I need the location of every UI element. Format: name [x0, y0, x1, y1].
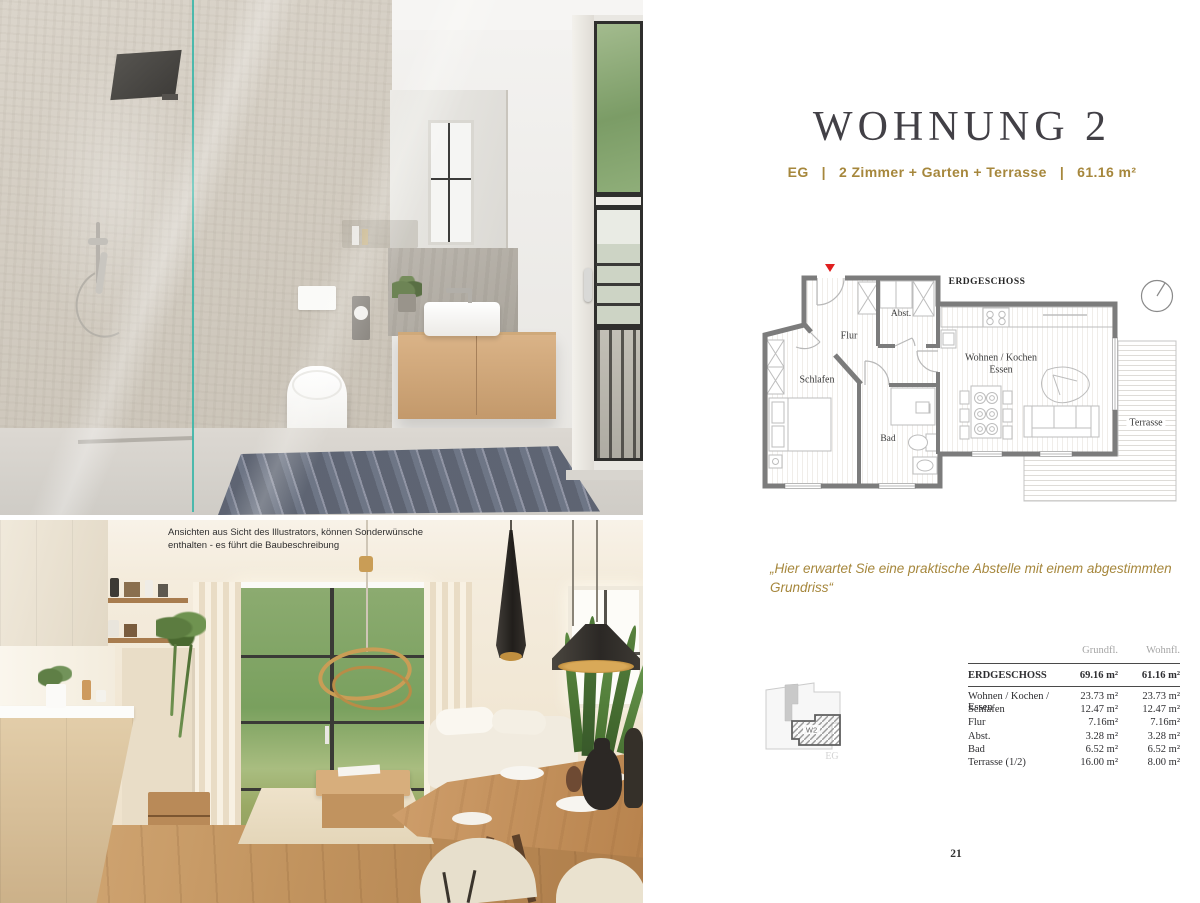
table-row: Terrasse (1/2) 16.00 m² 8.00 m²: [968, 757, 1180, 770]
chair-l1: [960, 391, 969, 404]
counter-amber-glass: [82, 680, 91, 700]
sofa-cushion-1: [435, 706, 495, 736]
balcony-door-glass-bottom: [594, 327, 643, 461]
pendant-cone-tall-rim: [500, 652, 522, 661]
garden-door-rail-2: [239, 721, 425, 724]
page-title: WOHNUNG 2: [724, 103, 1200, 151]
sofa-cushion-2: [491, 709, 546, 736]
room-label-abst: Abst.: [891, 309, 911, 319]
toilet-plan: [909, 435, 928, 450]
room-label-terrasse: Terrasse: [1126, 418, 1165, 429]
subtitle-floor: EG: [788, 164, 809, 180]
niche-bottle-amber: [362, 229, 368, 245]
bath-mirror-window-mullion: [448, 123, 450, 242]
room-label-essen: Essen: [989, 365, 1012, 376]
subtitle-rooms: 2 Zimmer + Garten + Terrasse: [839, 164, 1047, 180]
balcony-door-sill: [566, 470, 643, 480]
chair-l3: [960, 426, 969, 439]
plate-1: [500, 766, 544, 780]
locator-floor-label: EG: [825, 751, 838, 762]
kitchen-stove: [983, 308, 1009, 327]
pendant-cone-wide-rim: [558, 660, 634, 673]
floorplan-title: ERDGESCHOSS: [949, 277, 1026, 287]
col-header-grundfl: Grundfl.: [1058, 645, 1118, 656]
bath-wall-box: [916, 402, 929, 413]
toilet-paper-roll: [354, 306, 368, 320]
pendant-wide-cord-2: [596, 520, 598, 622]
brochure-page: Ansichten aus Sicht des Illustrators, kö…: [0, 0, 1200, 903]
total-wohnfl: 61.16 m²: [1118, 670, 1180, 681]
room-label-flur: Flur: [841, 331, 858, 342]
subtitle-area: 61.16 m²: [1077, 164, 1136, 180]
table-rule-bottom: [968, 686, 1180, 687]
bathroom-photo: [0, 0, 643, 515]
north-indicator-icon: [1142, 281, 1173, 312]
table-header-row: Grundfl. Wohnfl.: [968, 645, 1180, 661]
apartment-subtitle: EG|2 Zimmer + Garten + Terrasse|61.16 m²: [724, 164, 1200, 180]
floorplan-drawing: [755, 258, 1185, 516]
bath-sink: [424, 302, 500, 336]
photo-disclaimer: Ansichten aus Sicht des Illustrators, kö…: [168, 526, 448, 552]
nightstand: [769, 455, 782, 468]
counter-cup: [96, 690, 106, 702]
table-row: Schlafen 12.47 m² 12.47 m²: [968, 704, 1180, 717]
subtitle-separator-2: |: [1060, 164, 1064, 180]
unit-w2-label: W2: [806, 726, 817, 735]
shelf-item-box: [158, 584, 168, 597]
door-handle: [584, 268, 592, 302]
chair-r3: [1003, 426, 1012, 439]
table-row: Wohnen / Kochen / Essen 23.73 m² 23.73 m…: [968, 691, 1180, 704]
balcony-railing-rail-b: [596, 283, 641, 286]
total-grundfl: 69.16 m²: [1058, 670, 1118, 681]
vase-black-large: [582, 748, 622, 810]
room-label-schlafen: Schlafen: [800, 375, 835, 386]
toilet-flush-plate: [298, 286, 336, 310]
table-row: Abst. 3.28 m² 3.28 m²: [968, 731, 1180, 744]
marketing-quote: „Hier erwartet Sie eine praktische Abste…: [770, 560, 1194, 598]
chair-r1: [1003, 391, 1012, 404]
shower-head: [110, 50, 181, 100]
balcony-door-glass-mid: [594, 207, 643, 327]
balcony-railing-rail-a: [596, 263, 641, 266]
subtitle-separator-1: |: [822, 164, 826, 180]
dining-table-plan: [971, 386, 1001, 438]
table-row: Flur 7.16m² 7.16m²: [968, 717, 1180, 730]
table-total-row: ERDGESCHOSS 69.16 m² 61.16 m²: [968, 666, 1180, 684]
vase-brown-small: [566, 766, 582, 792]
plate-3: [452, 812, 492, 825]
table-rule-top: [968, 663, 1180, 664]
bath-mirror-window-rail: [431, 178, 471, 180]
bath-mirror-window-reflection: [428, 120, 474, 245]
counter-plant-pot: [46, 684, 66, 708]
room-label-bad: Bad: [880, 434, 895, 444]
coffee-table-body: [322, 794, 404, 828]
balcony-railing-rail-c: [596, 303, 641, 306]
garden-door-handle: [325, 726, 329, 744]
bath-faucet-spout: [468, 290, 472, 303]
ring-chandelier-canopy: [359, 556, 373, 572]
bed-pillow-1: [772, 402, 784, 423]
shower-arm: [162, 94, 178, 100]
chair-l2: [960, 409, 969, 422]
hand-shower-holder: [88, 238, 108, 245]
floorplan: ERDGESCHOSS Flur Abst. Schlafen Bad Wohn…: [755, 258, 1185, 516]
bath-rug: [218, 444, 600, 515]
room-label-wohnen: Wohnen / Kochen: [965, 353, 1037, 364]
shelf-item-books: [124, 582, 140, 597]
table-row: Bad 6.52 m² 6.52 m²: [968, 744, 1180, 757]
shelf2-item-pot: [108, 620, 119, 637]
toilet-seat: [292, 370, 342, 400]
shelf-upper: [102, 598, 188, 603]
shower-glass-edge: [192, 0, 194, 512]
kitchen-upper-cabinets: [0, 520, 108, 650]
building-locator: W2 EG: [756, 668, 848, 764]
hanging-plant: [156, 610, 206, 646]
disclaimer-line-2: enthalten - es führt die Baubeschreibung: [168, 539, 448, 552]
area-table: Grundfl. Wohnfl. ERDGESCHOSS 69.16 m² 61…: [968, 645, 1180, 770]
shelf2-item-wood: [124, 624, 137, 637]
chair-r2: [1003, 409, 1012, 422]
total-label: ERDGESCHOSS: [968, 670, 1058, 681]
living-room-photo: Ansichten aus Sicht des Illustrators, kö…: [0, 520, 643, 903]
col-header-wohnfl: Wohnfl.: [1118, 645, 1180, 656]
balcony-door-frame: [572, 15, 594, 473]
bath-vanity: [398, 332, 556, 419]
bath-plant-pot: [398, 294, 416, 312]
locator-drawing: W2 EG: [756, 668, 848, 764]
kitchen-counter: [0, 706, 134, 718]
vase-black-neck: [594, 738, 610, 754]
shelf-item-vase: [145, 580, 153, 597]
page-number: 21: [944, 848, 968, 860]
bath-vanity-seam: [476, 335, 477, 415]
bed-pillow-2: [772, 426, 784, 447]
pendant-wide-cord-1: [572, 520, 574, 626]
entrance-marker-icon: [825, 264, 835, 272]
disclaimer-line-1: Ansichten aus Sicht des Illustrators, kö…: [168, 526, 448, 539]
niche-bottle-white: [352, 226, 359, 245]
vase-black-tall: [624, 728, 643, 808]
balcony-door: [572, 15, 643, 473]
sofa-plan: [1024, 406, 1099, 437]
balcony-door-glass-top: [594, 21, 643, 195]
shelf-item-bottle: [110, 578, 119, 597]
balcony-door-rail-1: [594, 195, 643, 207]
